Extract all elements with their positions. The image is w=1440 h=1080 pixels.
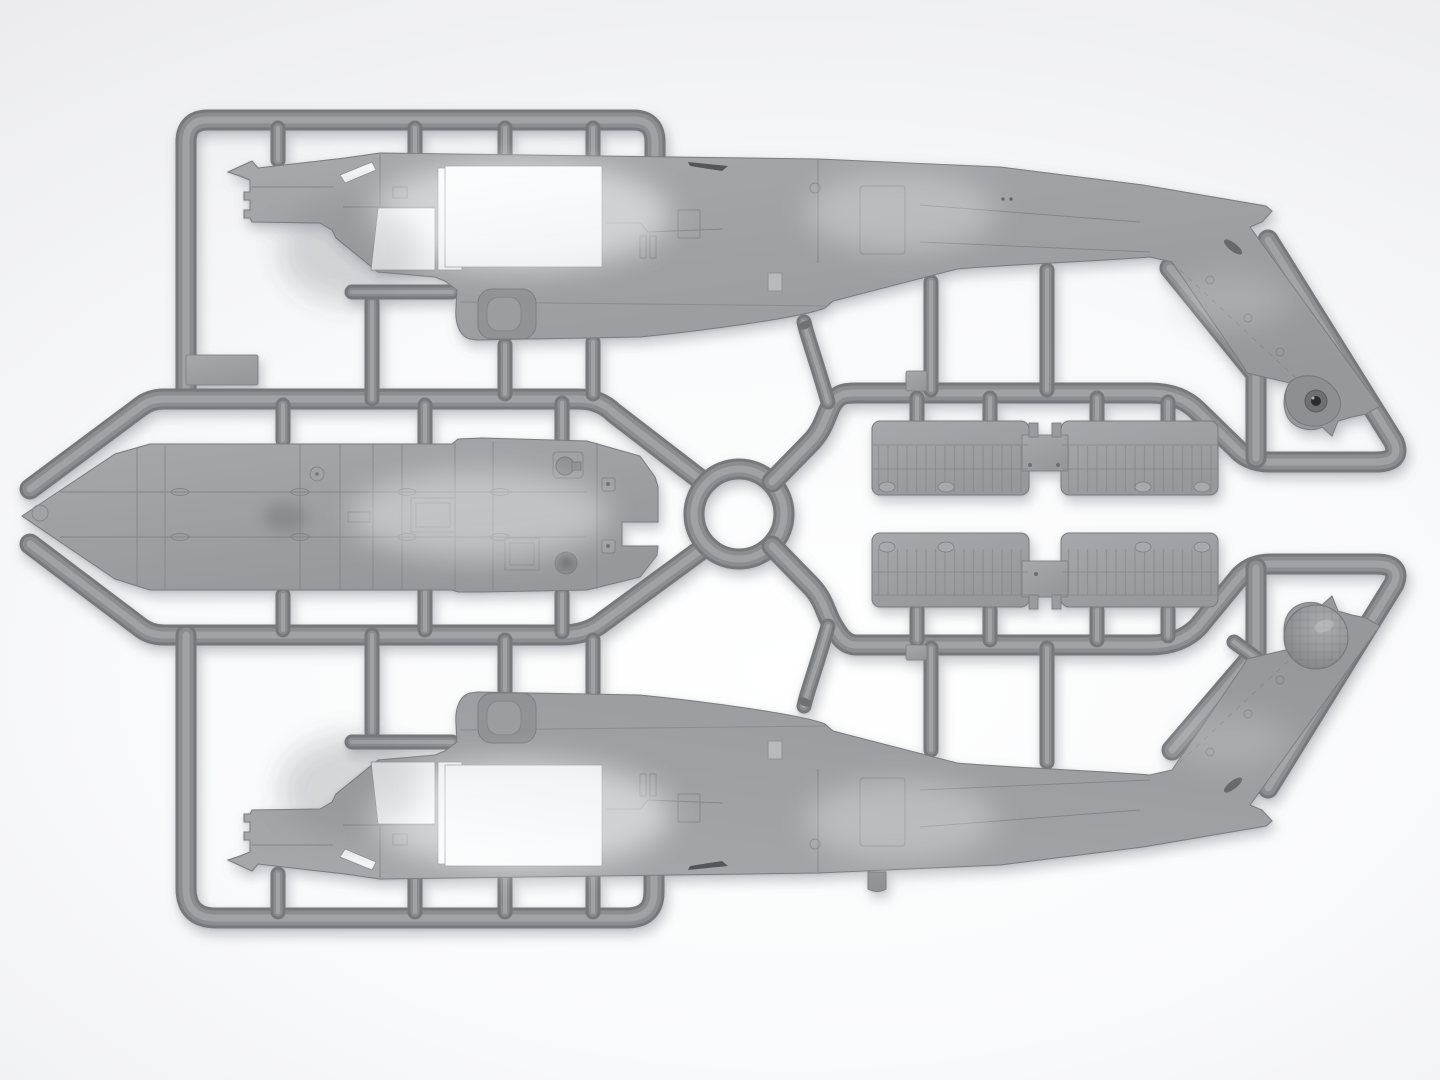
sprue-render [0,0,1440,1080]
cargo-door-opening [445,166,602,267]
door-window-opening [371,208,435,270]
roof-recess [555,552,577,574]
intake-scoop [478,289,536,339]
roof-keyhole [556,457,574,475]
roof-shadow-spot [263,502,307,532]
runner-tag [186,355,258,385]
runner-tab [906,371,927,391]
sprue-svg [0,0,1440,1080]
tail-wheel-stub [868,872,886,892]
runner-tab [906,645,927,660]
part-panels-upper [872,421,1218,495]
tail-dome [1284,605,1348,669]
part-panels-lower [872,533,1218,609]
part-roof [22,438,658,592]
